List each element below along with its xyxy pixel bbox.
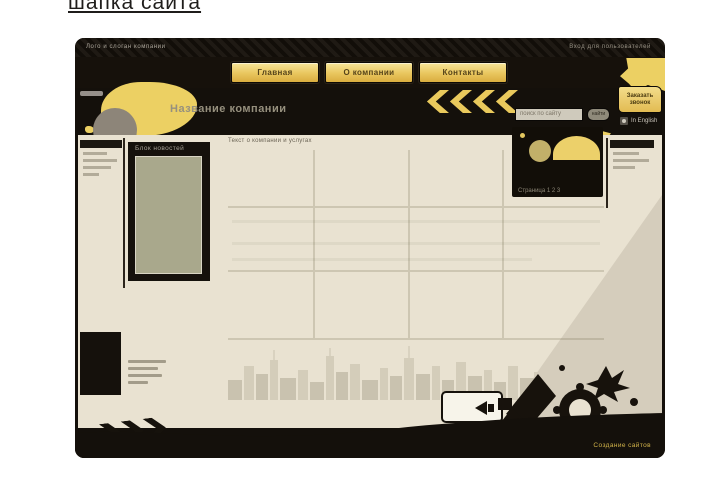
badge-line: Заказать (619, 93, 661, 100)
star-decoration (520, 133, 525, 138)
page-title: шапка сайта (68, 0, 201, 15)
nav-button-home[interactable]: Главная (231, 62, 319, 83)
hill-decoration (553, 136, 600, 160)
globe-icon (620, 117, 628, 125)
placeholder-line (83, 173, 99, 176)
placeholder-line (232, 242, 600, 245)
placeholder-line (613, 152, 639, 155)
news-menu-block: Блок новостей (128, 142, 210, 281)
placeholder-text (80, 91, 103, 96)
content-area: Блок новостей Текст о компании и услугах (78, 135, 662, 428)
promo-banner[interactable]: Страница 1 2 3 (512, 127, 603, 197)
sidebar-right-block (610, 140, 654, 169)
site-logo-text: Лого и слоган компании (86, 44, 166, 50)
chevron-left-icon (471, 90, 495, 113)
menu-title: Блок новостей (128, 142, 210, 152)
grid-line (228, 338, 604, 340)
contact-info-lines (128, 360, 166, 388)
content-intro-text: Текст о компании и услугах (228, 138, 312, 144)
placeholder-line (128, 381, 148, 384)
chevron-left-icon (425, 90, 449, 113)
search-button[interactable]: найти (587, 108, 610, 121)
placeholder-line (128, 360, 166, 363)
placeholder-line (613, 159, 649, 162)
grid-line (408, 150, 410, 340)
company-name: Название компании (170, 103, 286, 115)
placeholder-line (232, 220, 600, 223)
placeholder-line (613, 166, 635, 169)
placeholder-line (128, 374, 162, 377)
banner-pager[interactable]: Страница 1 2 3 (518, 188, 560, 194)
back-arrow-icon (488, 404, 494, 412)
moon-decoration (529, 140, 551, 162)
chevron-left-icon (448, 90, 472, 113)
badge-line: звонок (619, 100, 661, 107)
divider (123, 138, 125, 288)
callback-badge-button[interactable]: Заказать звонок (618, 86, 662, 113)
sidebar-left-block (80, 140, 122, 176)
block-header (80, 140, 122, 148)
footer-wave (75, 413, 665, 458)
nav-button-about[interactable]: О компании (325, 62, 413, 83)
footer-credit-link[interactable]: Создание сайтов (593, 442, 651, 449)
grid-line (502, 150, 504, 340)
grid-line (313, 150, 315, 340)
grid-line (228, 270, 604, 272)
menu-panel[interactable] (135, 156, 202, 274)
black-banner-placeholder (80, 332, 121, 395)
grid-line (228, 206, 604, 208)
language-link-label: In English (631, 118, 657, 124)
placeholder-line (83, 166, 111, 169)
site-template: Лого и слоган компании Вход для пользова… (75, 38, 665, 458)
placeholder-line (83, 152, 107, 155)
search-input[interactable]: поиск по сайту (515, 108, 583, 121)
design-canvas: шапка сайта Лого и слоган компании Вход … (0, 0, 720, 480)
nav-button-contacts[interactable]: Контакты (419, 62, 507, 83)
topbar: Лого и слоган компании Вход для пользова… (75, 38, 665, 57)
placeholder-line (83, 159, 117, 162)
block-header (610, 140, 654, 148)
divider (606, 138, 608, 208)
login-link[interactable]: Вход для пользователей (569, 44, 651, 50)
placeholder-line (128, 367, 158, 370)
placeholder-line (232, 258, 532, 261)
